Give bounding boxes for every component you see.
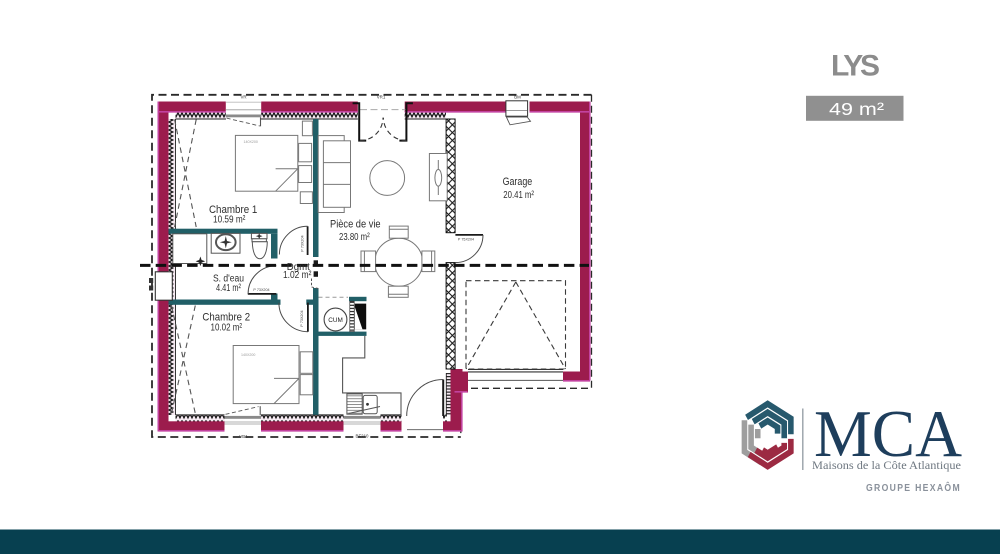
svg-text:VB1: VB1 (239, 434, 248, 439)
svg-text:BM: BM (514, 95, 521, 100)
svg-text:BF210: BF210 (356, 434, 369, 439)
svg-text:P 75X204: P 75X204 (458, 237, 474, 241)
svg-text:Garage: Garage (503, 176, 533, 188)
svg-text:Pièce de vie: Pièce de vie (330, 218, 381, 230)
svg-text:VR: VR (240, 95, 246, 100)
svg-text:VR1: VR1 (377, 95, 386, 100)
svg-text:140X200: 140X200 (241, 353, 255, 357)
svg-text:P 73X204: P 73X204 (253, 288, 269, 292)
svg-text:LYS: LYS (831, 49, 880, 82)
svg-text:49 m²: 49 m² (829, 99, 884, 119)
svg-text:GROUPE HEXAÔM: GROUPE HEXAÔM (866, 482, 961, 494)
svg-text:20.41 m²: 20.41 m² (503, 189, 534, 201)
svg-text:P 73X204: P 73X204 (301, 235, 305, 251)
svg-text:CUM: CUM (328, 317, 343, 324)
svg-text:Maisons de la Côte Atlantique: Maisons de la Côte Atlantique (812, 458, 961, 472)
svg-text:10.59 m²: 10.59 m² (213, 213, 246, 225)
svg-text:1.02 m²: 1.02 m² (283, 270, 312, 281)
svg-text:23.80 m²: 23.80 m² (339, 231, 370, 243)
svg-text:4.41 m²: 4.41 m² (216, 283, 241, 294)
svg-text:10.02 m²: 10.02 m² (211, 321, 243, 333)
svg-text:140X200: 140X200 (244, 140, 258, 144)
svg-text:P 73X204: P 73X204 (300, 310, 304, 326)
